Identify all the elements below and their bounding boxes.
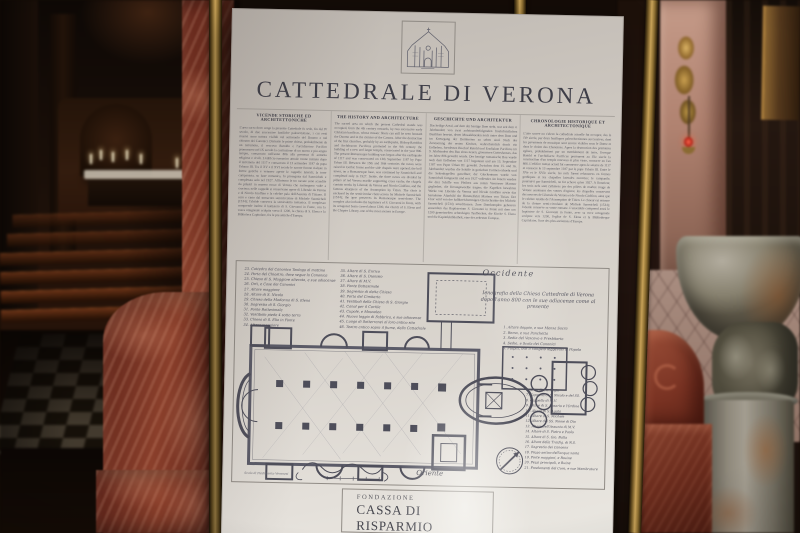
stand-pole-left	[209, 0, 222, 533]
plan-legend-left-a: 23. Cattedra del Canonico Teologo al mat…	[243, 266, 339, 329]
column-english: THE HISTORY AND ARCHITECTURE The sacred …	[327, 111, 425, 262]
floor-plan-section: 23. Cattedra del Canonico Teologo al mat…	[231, 260, 610, 490]
text-columns: VICENDE STORICHE ED ARCHITETTONICHE L'ar…	[234, 108, 615, 266]
plan-legend-right: 6. Altra Sedia Regia 7. Cappella di S. N…	[524, 387, 603, 472]
column-heading: VICENDE STORICHE ED ARCHITETTONICHE	[239, 113, 328, 123]
candle	[100, 150, 102, 160]
gilded-sconce	[668, 32, 704, 132]
distant-altar	[58, 98, 200, 220]
bench-scroll-carving	[654, 364, 680, 390]
column-italian: VICENDE STORICHE ED ARCHITETTONICHE L'ar…	[234, 109, 331, 260]
sponsor-box: FONDAZIONE CASSA DI RISPARMIO DI VERONA …	[341, 488, 494, 533]
gilded-frame-fragment	[761, 6, 800, 121]
plan-caption: Icnografia della Chiesa Cattedrale di Ve…	[476, 290, 601, 312]
column-body: L'aire sacree ou s'eleve la cathedrale a…	[522, 132, 612, 225]
panel-title: CATTEDRALE DI VERONA	[230, 76, 622, 110]
column-body: The sacred area on which the present Cat…	[332, 122, 422, 215]
candle	[126, 150, 128, 160]
plan-legend-left-b: 35. Altare di S. Enrico 36. Altare di S.…	[339, 268, 445, 331]
sanctuary-lamp	[684, 137, 693, 147]
column-heading: THE HISTORY AND ARCHITECTURE	[334, 115, 423, 121]
column-heading: GESCHICHTE UND ARCHITEKTUR	[429, 117, 518, 123]
candle	[176, 158, 178, 168]
lamp-chain	[688, 96, 690, 138]
column-body: L'area sacra dove sorge la presente Catt…	[238, 126, 328, 219]
altar-cloth	[84, 170, 186, 179]
plan-legend-top-right: 1. Altare doppio, e sua Mensa Sacra 2. B…	[503, 325, 604, 353]
candle	[112, 152, 114, 162]
church-interior-photo: CATTEDRALE DI VERONA VICENDE STORICHE ED…	[0, 0, 800, 533]
column-body: Das heilige Areal, auf dem der heutige D…	[427, 124, 517, 221]
plan-label-east: Oriente	[416, 469, 443, 478]
information-panel: CATTEDRALE DI VERONA VICENDE STORICHE ED…	[220, 8, 624, 533]
church-facade-icon	[401, 21, 456, 75]
altar-front	[88, 180, 184, 206]
plan-label-west: Occidente	[482, 268, 534, 278]
column-heading: CHRONOLOGIE HISTORIQUE ET ARCHITECTONIQU…	[523, 119, 612, 129]
red-marble-bench-base	[634, 424, 712, 533]
sponsor-name: CASSA DI RISPARMIO	[356, 502, 493, 533]
baptismal-font-pedestal	[700, 400, 794, 533]
candle	[140, 154, 142, 164]
candle	[90, 154, 92, 164]
church-facade-drawing	[405, 23, 452, 72]
column-french: CHRONOLOGIE HISTORIQUE ET ARCHITECTONIQU…	[517, 115, 615, 266]
altar-niche	[80, 104, 152, 176]
column-german: GESCHICHTE UND ARCHITEKTUR Das heilige A…	[422, 113, 520, 264]
